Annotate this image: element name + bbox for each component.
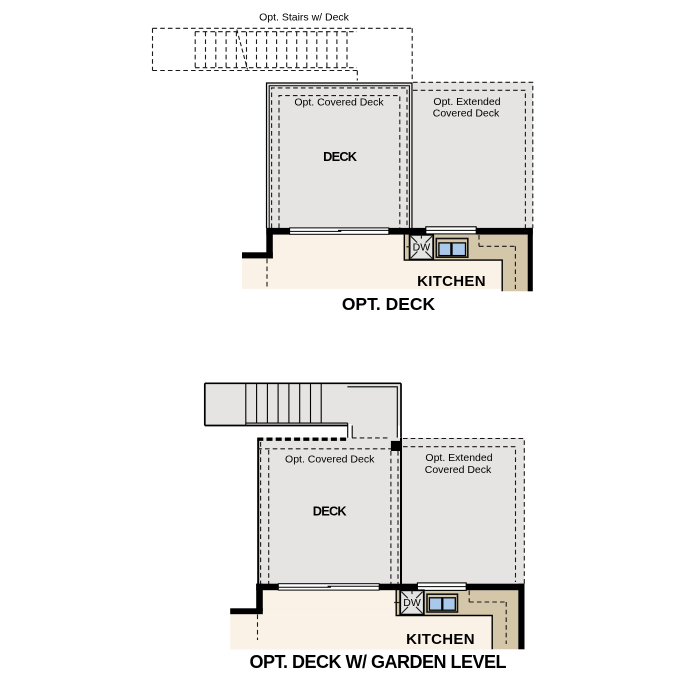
svg-text:Opt. Covered Deck: Opt. Covered Deck — [285, 454, 375, 466]
svg-text:Opt. Extended: Opt. Extended — [433, 96, 500, 108]
svg-text:KITCHEN: KITCHEN — [417, 273, 486, 290]
svg-text:Opt. Extended: Opt. Extended — [425, 452, 492, 464]
svg-text:OPT. DECK W/ GARDEN LEVEL: OPT. DECK W/ GARDEN LEVEL — [249, 652, 506, 672]
svg-text:Covered Deck: Covered Deck — [433, 108, 500, 120]
svg-text:DECK: DECK — [313, 504, 348, 519]
svg-text:KITCHEN: KITCHEN — [406, 631, 475, 648]
svg-text:DW: DW — [403, 597, 421, 609]
svg-text:OPT. DECK: OPT. DECK — [342, 294, 436, 314]
svg-text:Opt. Stairs w/ Deck: Opt. Stairs w/ Deck — [259, 12, 350, 24]
svg-text:Covered Deck: Covered Deck — [425, 464, 492, 476]
svg-text:Opt. Covered Deck: Opt. Covered Deck — [294, 97, 384, 109]
svg-text:DECK: DECK — [323, 149, 358, 164]
svg-text:DW: DW — [413, 242, 431, 254]
